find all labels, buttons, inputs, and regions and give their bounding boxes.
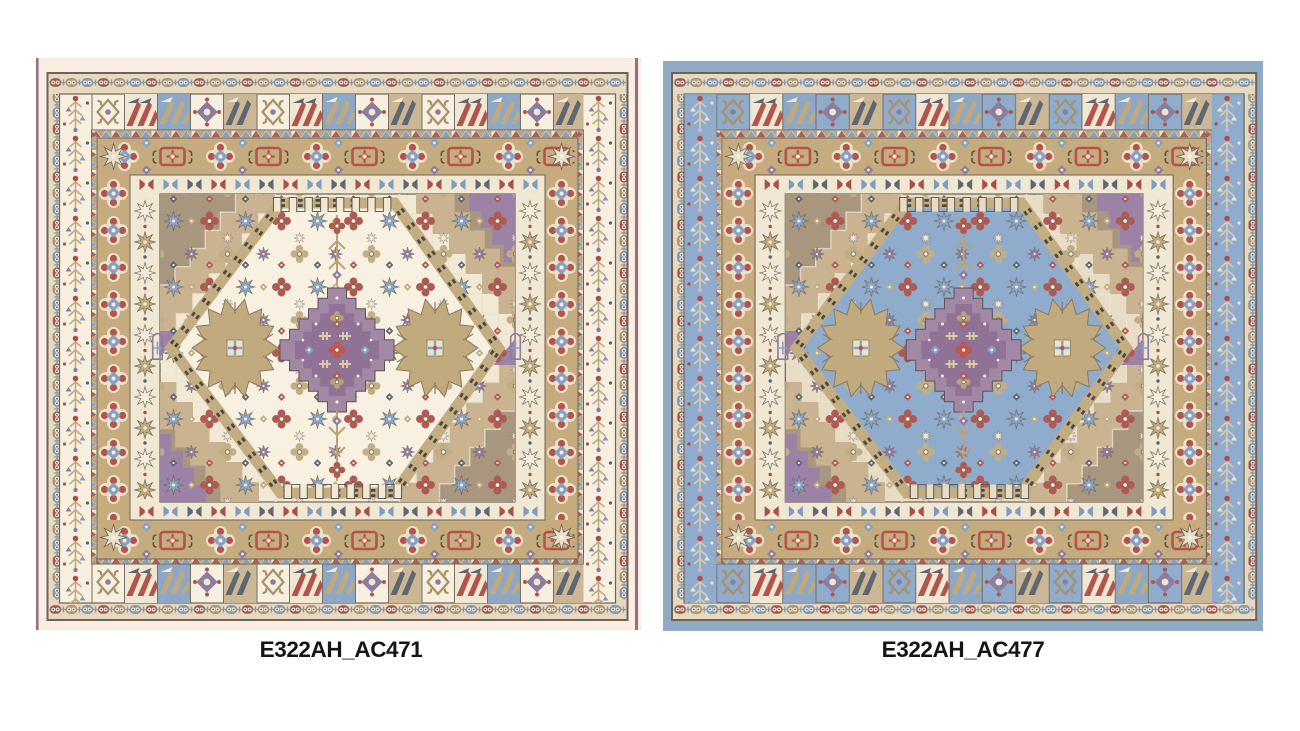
svg-text:E322AH_AC477: E322AH_AC477 xyxy=(882,637,1045,662)
svg-text:E322AH_AC471: E322AH_AC471 xyxy=(260,637,423,662)
